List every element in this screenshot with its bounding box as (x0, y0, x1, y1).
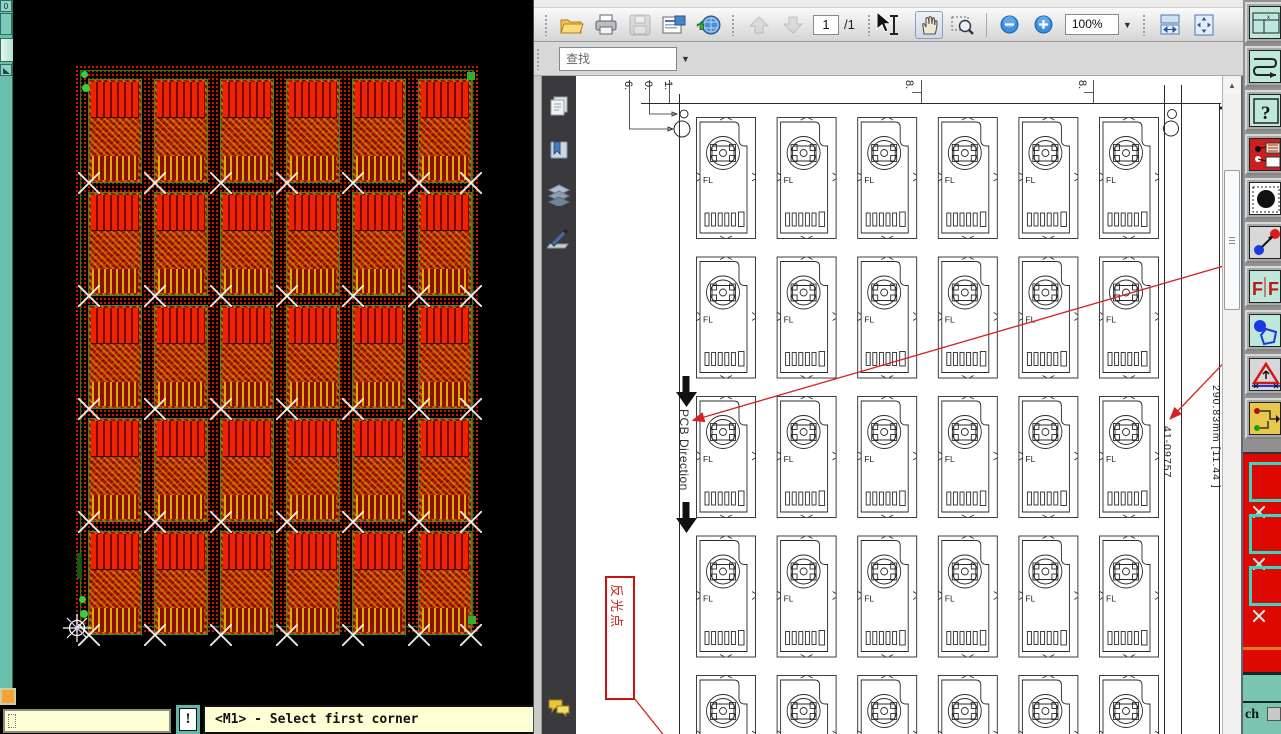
pcb-unit-outline (858, 118, 917, 239)
pcb-unit-outline (1019, 536, 1078, 657)
s-route-icon[interactable] (1245, 46, 1281, 87)
break-tab-xmark (342, 511, 364, 533)
panel-drawing: FL (576, 76, 1223, 734)
copper-shape (1249, 462, 1281, 502)
dim-label: 1. (662, 81, 674, 90)
break-tab-xmark (342, 285, 364, 307)
pcb-unit-outline (1100, 118, 1159, 239)
cad-command-bar: ! <M1> - Select first corner (0, 705, 533, 734)
toolbar-divider (986, 13, 987, 37)
fiducial-dot (81, 71, 88, 78)
pcb-unit-outline (858, 536, 917, 657)
sheet-table-icon[interactable]: x (1245, 2, 1281, 43)
net-arrow-icon[interactable] (1245, 222, 1281, 263)
break-tab-xmark (78, 285, 100, 307)
pcb-panel-array (75, 65, 478, 632)
pcb-module (220, 531, 274, 635)
break-tab-xmark (408, 398, 430, 420)
break-tab-xmark (342, 624, 364, 646)
pcb-unit-outline (777, 536, 836, 657)
dim-label: 8. (1076, 80, 1088, 89)
pcb-unit-outline (938, 676, 997, 734)
pcb-unit-outline (777, 397, 836, 518)
copper-shape (1249, 566, 1281, 606)
page-total-label: /1 (844, 17, 855, 32)
find-input[interactable]: 查找 (559, 47, 677, 71)
reflective-point-label: 反光点 (609, 584, 624, 629)
pcb-unit-outline (777, 118, 836, 239)
pcb-unit-outline (697, 536, 756, 657)
page-number-input[interactable]: 1 (813, 15, 839, 35)
print-icon[interactable] (592, 11, 620, 39)
route-board-icon[interactable] (1245, 398, 1281, 439)
open-folder-icon[interactable] (558, 11, 586, 39)
break-tab-xmark (276, 511, 298, 533)
fiducial-dot (82, 84, 90, 92)
pcb-module (220, 305, 274, 409)
scrollbar-thumb[interactable] (1224, 170, 1240, 310)
pcb-module (352, 418, 406, 522)
break-tab-xmark (276, 624, 298, 646)
pcb-module (418, 531, 472, 635)
partial-label: ch (1245, 707, 1259, 723)
fit-page-icon[interactable] (1190, 11, 1218, 39)
partial-button[interactable] (1267, 707, 1281, 721)
break-tab-xmark (460, 172, 482, 194)
vertical-scrollbar[interactable]: ▲ (1222, 76, 1241, 734)
text-ff-icon[interactable]: F F (1245, 266, 1281, 307)
pcb-unit-outline (938, 536, 997, 657)
zoom-dropdown-caret[interactable]: ▼ (1123, 20, 1132, 30)
pcb-module-grid (75, 65, 478, 632)
save-icon[interactable] (626, 11, 654, 39)
pcb-module (286, 418, 340, 522)
cad-zoom-fragment (1243, 452, 1281, 672)
page-down-icon[interactable] (779, 11, 807, 39)
pcb-module (418, 192, 472, 296)
fit-width-icon[interactable] (1156, 11, 1184, 39)
part-number-label: 41-09757 (1161, 426, 1173, 478)
break-tab-xmark (210, 285, 232, 307)
dim-label: 0. (642, 81, 654, 90)
pcb-unit-outline (938, 257, 997, 378)
pcb-module (88, 79, 142, 183)
break-tab-xmark (460, 511, 482, 533)
pdf-content-area: FL (534, 76, 1243, 734)
break-tab-xmark (210, 511, 232, 533)
break-tab-xmark (342, 172, 364, 194)
pcb-module (154, 531, 208, 635)
web-upload-icon[interactable] (694, 11, 722, 39)
edge-mark (77, 553, 82, 579)
board-edge-line (1243, 647, 1281, 650)
alert-button[interactable]: ! (176, 705, 200, 734)
command-input[interactable] (3, 709, 171, 733)
pcb-module (352, 79, 406, 183)
break-tab-xmark (408, 624, 430, 646)
pcb-unit-outline (1100, 257, 1159, 378)
pcb-unit-outline (777, 676, 836, 734)
break-tab-xmark (144, 511, 166, 533)
cad-right-toolbar: x ? F F (1243, 0, 1281, 734)
break-tab-xmark (210, 624, 232, 646)
command-echo-text: <M1> - Select first corner (203, 705, 533, 734)
mouse-cursor (876, 11, 894, 35)
zoom-level-input[interactable]: 100% (1065, 14, 1119, 35)
cad-edge-button[interactable]: 0 (0, 0, 12, 12)
pcb-module (88, 192, 142, 296)
pcb-module (286, 79, 340, 183)
pcb-unit-outline (697, 676, 756, 734)
cad-panel-fragment: ch (1243, 672, 1281, 734)
pcb-module (88, 418, 142, 522)
marquee-zoom-icon[interactable] (949, 11, 977, 39)
break-tab-xmark (144, 624, 166, 646)
pcb-unit-outline (858, 257, 917, 378)
right-dimension-label: 290.83mm [11.44 ] (1210, 385, 1222, 489)
pdf-find-bar: 查找 ▼ (534, 42, 1243, 76)
bookmarks-icon[interactable] (547, 138, 571, 162)
break-tab-xmark (408, 511, 430, 533)
break-tab-xmark (342, 398, 364, 420)
pcb-module (418, 79, 472, 183)
pcb-unit-outline (1019, 676, 1078, 734)
pcb-unit-outline (697, 118, 756, 239)
pcb-module (220, 79, 274, 183)
pcb-module (352, 192, 406, 296)
copper-shape (1249, 514, 1281, 554)
page-up-icon[interactable] (745, 11, 773, 39)
unit-array (697, 118, 1159, 734)
break-tab-xmark (408, 172, 430, 194)
pcb-module (88, 531, 142, 635)
break-tab-xmark (144, 172, 166, 194)
svg-text:x: x (1267, 15, 1270, 21)
break-tab-xmark (276, 398, 298, 420)
pcb-unit-outline (1019, 118, 1078, 239)
board-red-icon[interactable] (1245, 134, 1281, 175)
dim-label: 8. (903, 80, 915, 89)
pdf-window-top (534, 0, 1243, 8)
pcb-unit-outline (938, 397, 997, 518)
toolbar-grip (1142, 14, 1147, 36)
hand-tool-icon[interactable] (915, 11, 943, 39)
svg-text:?: ? (1261, 103, 1271, 124)
break-tab-xmark (144, 398, 166, 420)
zoom-in-icon[interactable] (1030, 11, 1058, 39)
pdf-nav-panel (542, 76, 576, 734)
pdf-viewer-window: 1 /1 100% ▼ (533, 0, 1243, 734)
fiducial-dot (467, 72, 475, 80)
pcb-unit-outline (777, 257, 836, 378)
fiducial-circle (1168, 110, 1177, 119)
pcb-unit-outline (938, 118, 997, 239)
break-tab-xmark (460, 398, 482, 420)
pcb-module (418, 305, 472, 409)
pcb-direction-label: PCB Direction (677, 409, 691, 491)
find-placeholder: 查找 (566, 52, 590, 66)
pcb-module (154, 79, 208, 183)
email-icon[interactable] (660, 11, 688, 39)
cad-edge-button[interactable] (0, 13, 12, 35)
pcb-unit-outline (1100, 536, 1159, 657)
break-tab-xmark (460, 624, 482, 646)
screen: 0 (0, 0, 1281, 734)
cad-left-toolbar-sliver: 0 (0, 0, 13, 688)
pcb-unit-outline (858, 397, 917, 518)
shapes-blue-icon[interactable] (1245, 310, 1281, 351)
pcb-module (154, 305, 208, 409)
pcb-module (286, 531, 340, 635)
break-tab-xmark (408, 285, 430, 307)
fiducial-circle (1164, 121, 1179, 136)
pcb-unit-outline (1100, 676, 1159, 734)
pcb-unit-outline (1100, 397, 1159, 518)
break-tab-xmark (276, 172, 298, 194)
filled-circle-icon[interactable] (1245, 178, 1281, 219)
pcb-module (352, 305, 406, 409)
taskbar-chip (0, 688, 16, 705)
toolbar-grip (544, 14, 549, 36)
break-tab-xmark (78, 511, 100, 533)
toolbar-grip (867, 14, 872, 36)
dim-label: 6. (622, 81, 634, 90)
pcb-module (220, 192, 274, 296)
break-tab-xmark (210, 172, 232, 194)
pcb-module (418, 418, 472, 522)
break-tab-xmark (210, 398, 232, 420)
pcb-unit-outline (1019, 397, 1078, 518)
pcb-unit-outline (697, 397, 756, 518)
signature-icon[interactable] (547, 226, 571, 250)
break-tab-xmark (78, 398, 100, 420)
find-dropdown-caret[interactable]: ▼ (681, 54, 690, 64)
break-tab-xmark (78, 624, 100, 646)
comments-icon[interactable] (547, 695, 571, 719)
fiducial-circle (674, 121, 690, 137)
fiducial-dot (79, 596, 86, 603)
cad-canvas[interactable] (13, 0, 533, 705)
red-annotations: 反光点 (606, 261, 1223, 734)
pcb-module (352, 531, 406, 635)
pcb-module (286, 192, 340, 296)
break-tab-xmark (144, 285, 166, 307)
pcb-module (154, 418, 208, 522)
fiducial-circle (680, 110, 688, 118)
toolbar-grip (731, 14, 736, 36)
cad-edge-button[interactable] (0, 64, 12, 76)
pdf-panel-gutter (534, 76, 542, 734)
toolbar-grip (536, 48, 541, 70)
pcb-module (154, 192, 208, 296)
fiducial-dot (468, 616, 476, 624)
break-tab-xmark (276, 285, 298, 307)
help-icon[interactable]: ? (1245, 90, 1281, 131)
pdf-page: FL (576, 76, 1223, 734)
pcb-module (88, 305, 142, 409)
layers-icon[interactable] (547, 182, 571, 206)
pcb-module (220, 418, 274, 522)
pcb-module (286, 305, 340, 409)
pages-icon[interactable] (547, 94, 571, 118)
cad-app-window: 0 (0, 0, 533, 734)
scrollbar-up-arrow[interactable]: ▲ (1224, 78, 1240, 94)
pcb-unit-outline (858, 676, 917, 734)
drc-triangle-icon[interactable] (1245, 354, 1281, 395)
pcb-unit-outline (697, 257, 756, 378)
break-tab-xmark (460, 285, 482, 307)
zoom-out-icon[interactable] (996, 11, 1024, 39)
break-tab-xmark (78, 172, 100, 194)
